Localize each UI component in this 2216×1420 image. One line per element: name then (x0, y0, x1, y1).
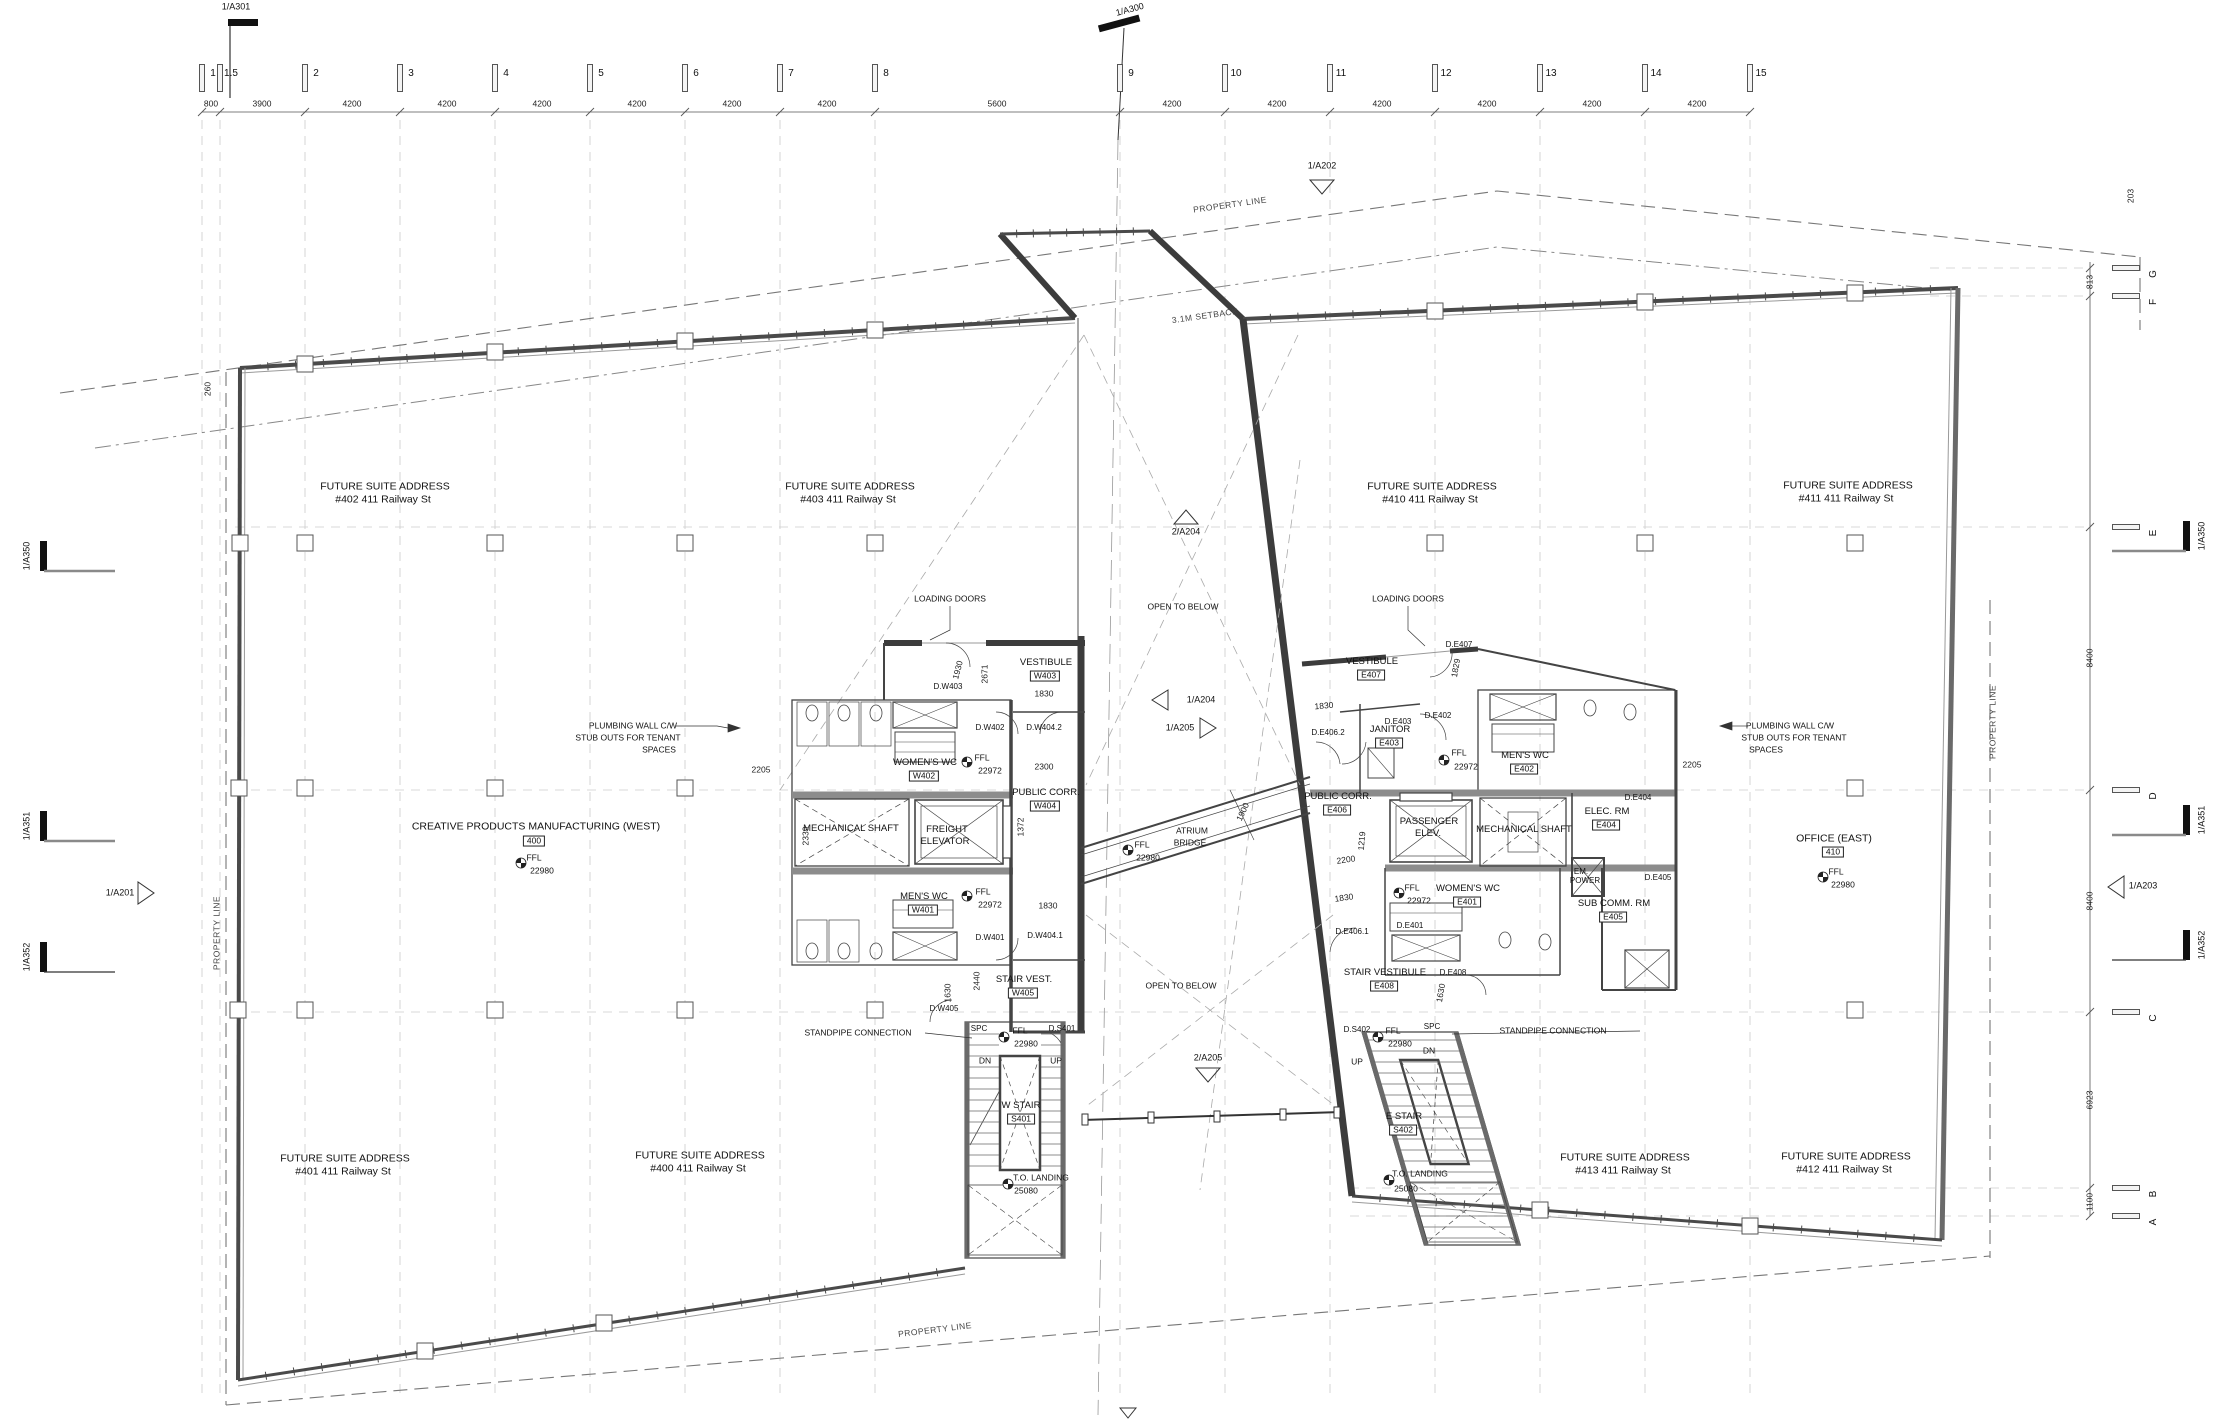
ffl-e-core: FFL (1451, 749, 1466, 758)
stair-w-dn: DN (979, 1057, 991, 1066)
grid-column-dimension: 800 (204, 100, 218, 109)
dim-2339: 2339 (802, 827, 811, 846)
door-dw404-1: D.W404.1 (1027, 932, 1063, 940)
section-1a201: 1/A201 (106, 888, 135, 897)
room-e-stair-tag: S402 (1389, 1125, 1417, 1136)
ffl-w-womens: FFL (974, 754, 989, 763)
ffl-bridge: FFL (1134, 841, 1149, 850)
note-atrium-2: BRIDGE (1174, 839, 1207, 848)
grid-column-label: 6 (693, 69, 699, 80)
door-de407: D.E407 (1446, 641, 1473, 649)
section-1a350-left: 1/A350 (22, 542, 31, 571)
grid-column-tick (1537, 64, 1543, 92)
room-e-pass-elev-1: PASSENGER (1400, 817, 1458, 827)
grid-row-label: E (2149, 530, 2160, 537)
grid-column-tick (1747, 64, 1753, 92)
room-w-mech-shaft: MECHANICAL SHAFT (803, 824, 899, 834)
note-loading-west: LOADING DOORS (914, 595, 986, 604)
grid-column-label: 3 (408, 69, 414, 80)
grid-row-label: F (2149, 299, 2160, 305)
dim-2205-west: 2205 (752, 766, 771, 775)
grid-column-dimension: 4200 (818, 100, 837, 109)
door-de401: D.E401 (1397, 922, 1424, 930)
dim-1930: 1930 (951, 660, 965, 681)
grid-column-tick (1117, 64, 1123, 92)
grid-column-label: 10 (1230, 69, 1241, 80)
suite-411-address: #411 411 Railway St (1799, 493, 1894, 504)
room-e-mens-wc: MEN'S WC (1501, 751, 1549, 761)
grid-column-label: 9 (1128, 69, 1134, 80)
grid-row-tick (2112, 1213, 2140, 1219)
grid-column-dimension: 4200 (1688, 100, 1707, 109)
room-e-public-corr: PUBLIC CORR. (1304, 792, 1372, 802)
suite-412-title: FUTURE SUITE ADDRESS (1781, 1151, 1911, 1162)
ffl-e-womens-value: 22972 (1407, 897, 1431, 906)
grid-column-label: 5 (598, 69, 604, 80)
dim-1630-w: 1630 (944, 984, 953, 1003)
suite-403-title: FUTURE SUITE ADDRESS (785, 481, 915, 492)
grid-column-tick (587, 64, 593, 92)
room-e-vestibule: VESTIBULE (1346, 657, 1398, 667)
room-e-pass-elev-2: ELEV. (1415, 829, 1441, 839)
note-plumbing-east-3: SPACES (1749, 746, 1783, 755)
ffl-e-stair-value: 22980 (1388, 1040, 1412, 1049)
ffl-w-stair-value: 22980 (1014, 1040, 1038, 1049)
grid-column-tick (777, 64, 783, 92)
ffl-east-zone: FFL (1828, 868, 1843, 877)
suite-400-title: FUTURE SUITE ADDRESS (635, 1150, 765, 1161)
stair-e-up: UP (1351, 1058, 1363, 1067)
grid-row-dimension: 1100 (2086, 1193, 2095, 1211)
suite-410-address: #410 411 Railway St (1382, 494, 1478, 505)
room-e-stair: E STAIR (1386, 1112, 1422, 1122)
room-w-stair-tag: S401 (1007, 1114, 1035, 1125)
grid-column-dimension: 4200 (1268, 100, 1287, 109)
door-dw402: D.W402 (976, 724, 1005, 732)
section-2a204: 2/A204 (1172, 527, 1201, 536)
suite-410-title: FUTURE SUITE ADDRESS (1367, 481, 1497, 492)
note-loading-east: LOADING DOORS (1372, 595, 1444, 604)
grid-column-tick (872, 64, 878, 92)
grid-column-dimension: 4200 (723, 100, 742, 109)
note-standpipe-west: STANDPIPE CONNECTION (804, 1029, 911, 1038)
dim-2671: 2671 (981, 665, 990, 684)
grid-column-dimension: 4200 (533, 100, 552, 109)
dim-260: 260 (204, 382, 213, 396)
door-de402: D.E402 (1425, 712, 1452, 720)
note-open-below-upper: OPEN TO BELOW (1147, 603, 1218, 612)
zone-west-title: CREATIVE PRODUCTS MANUFACTURING (WEST) (412, 821, 660, 832)
note-plumbing-east-2: STUB OUTS FOR TENANT (1741, 734, 1846, 743)
grid-column-tick (199, 64, 205, 92)
room-e-sub-comm-tag: E405 (1599, 912, 1627, 923)
grid-row-label: D (2149, 792, 2160, 799)
note-atrium-1: ATRIUM (1176, 827, 1208, 836)
dim-1830-e: 1830 (1334, 892, 1354, 903)
room-e-janitor: JANITOR (1370, 725, 1410, 735)
grid-column-label: 1 (210, 69, 216, 80)
grid-column-label: 15 (1755, 69, 1766, 80)
door-dw401: D.W401 (976, 934, 1005, 942)
dim-203: 203 (2127, 189, 2136, 203)
ffl-w-mens-value: 22972 (978, 901, 1002, 910)
grid-column-dimension: 3900 (253, 100, 272, 109)
note-plumbing-west-1: PLUMBING WALL C/W (589, 722, 677, 731)
room-e-vestibule-tag: E407 (1357, 670, 1385, 681)
section-1a351-left: 1/A351 (22, 812, 31, 841)
ffl-w-mens: FFL (975, 888, 990, 897)
dim-1372: 1372 (1017, 818, 1026, 837)
door-de405: D.E405 (1645, 874, 1672, 882)
grid-column-tick (492, 64, 498, 92)
door-dw405: D.W405 (930, 1005, 959, 1013)
door-de403: D.E403 (1385, 718, 1412, 726)
property-line-bottom: PROPERTY LINE (898, 1321, 973, 1339)
ffl-w-stair: FFL (1012, 1027, 1027, 1036)
grid-row-dimension: 8400 (2086, 649, 2095, 668)
note-plumbing-west-3: SPACES (642, 746, 676, 755)
dim-2440: 2440 (973, 972, 982, 991)
grid-row-tick (2112, 1185, 2140, 1191)
room-e-sub-comm: SUB COMM. RM (1578, 899, 1650, 909)
annotation-layer: 1/A3011/A3001/A2022/A2041/A2041/A2052/A2… (0, 0, 2216, 1420)
ffl-e-stair: FFL (1385, 1027, 1400, 1036)
grid-column-tick (397, 64, 403, 92)
section-1a205: 1/A205 (1166, 723, 1195, 732)
grid-column-dimension: 4200 (1583, 100, 1602, 109)
section-1a351-right: 1/A351 (2197, 806, 2206, 835)
dim-2300: 2300 (1035, 763, 1054, 772)
suite-401-address: #401 411 Railway St (295, 1166, 391, 1177)
suite-411-title: FUTURE SUITE ADDRESS (1783, 480, 1913, 491)
room-w-freight-2: ELEVATOR (920, 837, 969, 847)
room-e-stair-vest: STAIR VESTIBULE (1344, 968, 1426, 978)
spc-east: SPC (1424, 1023, 1440, 1031)
property-line-right: PROPERTY LINE (1989, 685, 1998, 759)
note-open-below-lower: OPEN TO BELOW (1145, 982, 1216, 991)
grid-column-label: 8 (883, 69, 889, 80)
section-2a205: 2/A205 (1194, 1053, 1223, 1062)
grid-row-tick (2112, 265, 2140, 271)
stair-e-dn: DN (1423, 1047, 1435, 1056)
grid-row-label: B (2149, 1191, 2160, 1198)
suite-403-address: #403 411 Railway St (800, 494, 896, 505)
grid-column-dimension: 4200 (1373, 100, 1392, 109)
door-de406-1: D.E406.1 (1335, 928, 1368, 936)
suite-401-title: FUTURE SUITE ADDRESS (280, 1153, 410, 1164)
door-de406-2: D.E406.2 (1311, 729, 1344, 737)
dim-1900: 1900 (1235, 802, 1251, 823)
door-ds402: D.S402 (1344, 1026, 1371, 1034)
room-w-vestibule: VESTIBULE (1020, 658, 1072, 668)
dim-2200: 2200 (1336, 854, 1356, 865)
dim-1830-wstair: 1830 (1039, 902, 1058, 911)
setback-note: 3.1M SETBACK (1171, 307, 1239, 325)
tol-east-value: 25080 (1394, 1185, 1418, 1194)
section-1a301: 1/A301 (222, 2, 251, 11)
room-w-stair: W STAIR (1002, 1101, 1041, 1111)
dim-1829: 1829 (1450, 658, 1462, 678)
room-e-em-power-2: POWER (1570, 877, 1600, 885)
property-line-left: PROPERTY LINE (213, 896, 222, 970)
grid-column-dimension: 4200 (343, 100, 362, 109)
room-e-elec-rm: ELEC. RM (1585, 807, 1630, 817)
grid-column-dimension: 4200 (1478, 100, 1497, 109)
grid-row-tick (2112, 293, 2140, 299)
section-1a203: 1/A203 (2129, 881, 2158, 890)
room-e-elec-rm-tag: E404 (1592, 820, 1620, 831)
ffl-e-core-value: 22972 (1454, 763, 1478, 772)
grid-row-tick (2112, 1009, 2140, 1015)
grid-column-dimension: 4200 (628, 100, 647, 109)
room-e-public-corr-tag: E406 (1323, 805, 1351, 816)
grid-column-dimension: 5600 (988, 100, 1007, 109)
grid-column-tick (682, 64, 688, 92)
grid-row-dimension: 813 (2086, 275, 2095, 289)
door-de404: D.E404 (1625, 794, 1652, 802)
section-1a350-right: 1/A350 (2197, 522, 2206, 551)
grid-row-label: G (2149, 270, 2160, 278)
grid-row-dimension: 6923 (2086, 1091, 2095, 1110)
tol-west: T.O. LANDING (1013, 1174, 1069, 1183)
ffl-east-zone-value: 22980 (1831, 881, 1855, 890)
note-plumbing-west-2: STUB OUTS FOR TENANT (575, 734, 680, 743)
note-plumbing-east-1: PLUMBING WALL C/W (1746, 722, 1834, 731)
room-e-womens-wc-tag: E401 (1453, 897, 1481, 908)
grid-column-label: 13 (1545, 69, 1556, 80)
ffl-west-zone-value: 22980 (530, 867, 554, 876)
suite-400-address: #400 411 Railway St (650, 1163, 746, 1174)
suite-413-address: #413 411 Railway St (1575, 1165, 1671, 1176)
dim-2205-east: 2205 (1683, 761, 1702, 770)
zone-east-tag: 410 (1822, 847, 1844, 858)
grid-row-dimension: 8400 (2086, 892, 2095, 911)
ffl-e-womens: FFL (1404, 884, 1419, 893)
room-w-freight-1: FREIGHT (926, 825, 968, 835)
dim-1219: 1219 (1357, 831, 1368, 851)
dim-1630-e: 1630 (1435, 983, 1447, 1003)
room-w-womens-wc: WOMEN'S WC (893, 758, 957, 768)
ffl-bridge-value: 22980 (1136, 854, 1160, 863)
grid-column-label: 4 (503, 69, 509, 80)
section-1a300: 1/A300 (1115, 2, 1145, 19)
room-w-stair-vest: STAIR VEST. (996, 975, 1052, 985)
ffl-west-zone: FFL (526, 854, 541, 863)
dim-1830-wvest: 1830 (1035, 690, 1054, 699)
suite-413-title: FUTURE SUITE ADDRESS (1560, 1152, 1690, 1163)
room-w-mens-wc-tag: W401 (908, 905, 938, 916)
ffl-w-womens-value: 22972 (978, 767, 1002, 776)
zone-east-title: OFFICE (EAST) (1796, 833, 1872, 844)
section-1a204: 1/A204 (1187, 695, 1216, 704)
stair-w-up: UP (1050, 1057, 1062, 1066)
room-w-public-corr: PUBLIC CORR. (1012, 788, 1080, 798)
grid-column-tick (1642, 64, 1648, 92)
room-w-stair-vest-tag: W405 (1008, 988, 1038, 999)
room-e-stair-vest-tag: E408 (1370, 981, 1398, 992)
grid-row-tick (2112, 524, 2140, 530)
room-w-public-corr-tag: W404 (1030, 801, 1060, 812)
zone-west-tag: 400 (523, 836, 545, 847)
room-w-vestibule-tag: W403 (1030, 671, 1060, 682)
grid-row-tick (2112, 787, 2140, 793)
grid-column-tick (217, 64, 223, 92)
note-standpipe-east: STANDPIPE CONNECTION (1499, 1027, 1606, 1036)
grid-column-label: 14 (1650, 69, 1661, 80)
grid-row-label: A (2149, 1219, 2160, 1226)
room-e-womens-wc: WOMEN'S WC (1436, 884, 1500, 894)
door-dw403: D.W403 (934, 683, 963, 691)
dim-1830-evest: 1830 (1314, 701, 1334, 712)
section-1a202: 1/A202 (1308, 161, 1337, 170)
floor-plan-page: 1/A3011/A3001/A2022/A2041/A2041/A2052/A2… (0, 0, 2216, 1420)
room-e-mens-wc-tag: E402 (1510, 764, 1538, 775)
section-1a352-left: 1/A352 (22, 943, 31, 972)
door-dw404-2: D.W404.2 (1026, 724, 1062, 732)
grid-column-tick (1432, 64, 1438, 92)
grid-column-label: 2 (313, 69, 319, 80)
grid-column-label: 12 (1440, 69, 1451, 80)
room-e-janitor-tag: E403 (1375, 738, 1403, 749)
grid-column-tick (1327, 64, 1333, 92)
property-line-top: PROPERTY LINE (1193, 195, 1268, 214)
spc-west: SPC (971, 1025, 987, 1033)
grid-row-label: C (2149, 1014, 2160, 1021)
tol-west-value: 25080 (1014, 1187, 1038, 1196)
room-e-mech-shaft: MECHANICAL SHAFT (1476, 825, 1572, 835)
grid-column-tick (1222, 64, 1228, 92)
grid-column-dimension: 4200 (438, 100, 457, 109)
grid-column-dimension: 4200 (1163, 100, 1182, 109)
door-ds401: D.S401 (1049, 1025, 1076, 1033)
section-1a352-right: 1/A352 (2197, 931, 2206, 960)
room-w-womens-wc-tag: W402 (909, 771, 939, 782)
grid-column-label: 11 (1336, 69, 1346, 80)
suite-402-address: #402 411 Railway St (335, 494, 431, 505)
grid-column-label: 7 (788, 69, 794, 80)
suite-412-address: #412 411 Railway St (1796, 1164, 1892, 1175)
grid-column-label: 1.5 (224, 69, 238, 80)
tol-east: T.O. LANDING (1392, 1170, 1448, 1179)
door-de408: D.E408 (1440, 969, 1467, 977)
suite-402-title: FUTURE SUITE ADDRESS (320, 481, 450, 492)
grid-column-tick (302, 64, 308, 92)
room-w-mens-wc: MEN'S WC (900, 892, 948, 902)
